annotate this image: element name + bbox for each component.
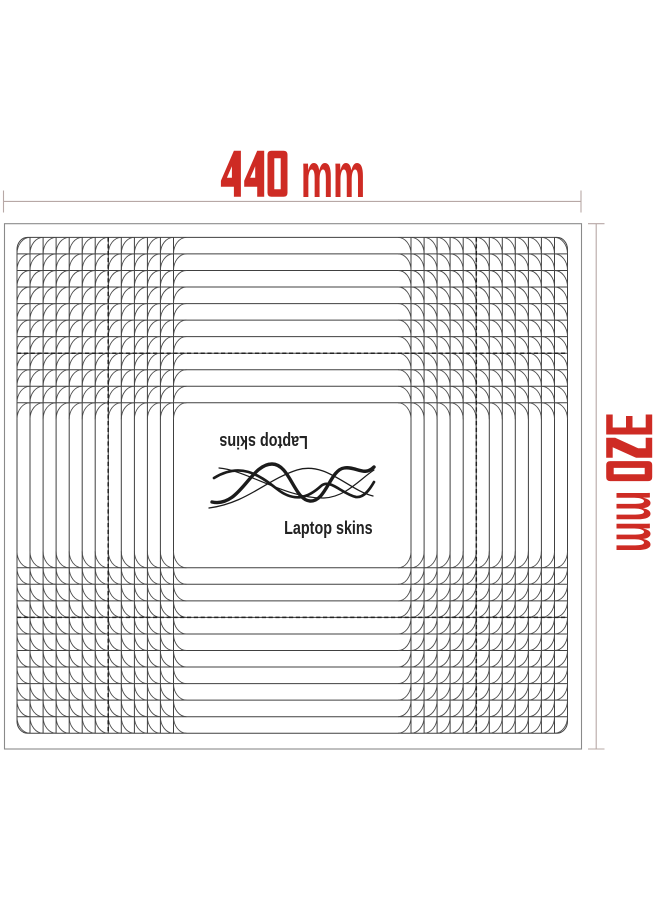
svg-text:mm: mm: [603, 491, 660, 553]
svg-text:Laptop skins: Laptop skins: [284, 518, 373, 538]
svg-text:Laptop skins: Laptop skins: [219, 432, 308, 452]
svg-text:mm: mm: [301, 140, 365, 210]
